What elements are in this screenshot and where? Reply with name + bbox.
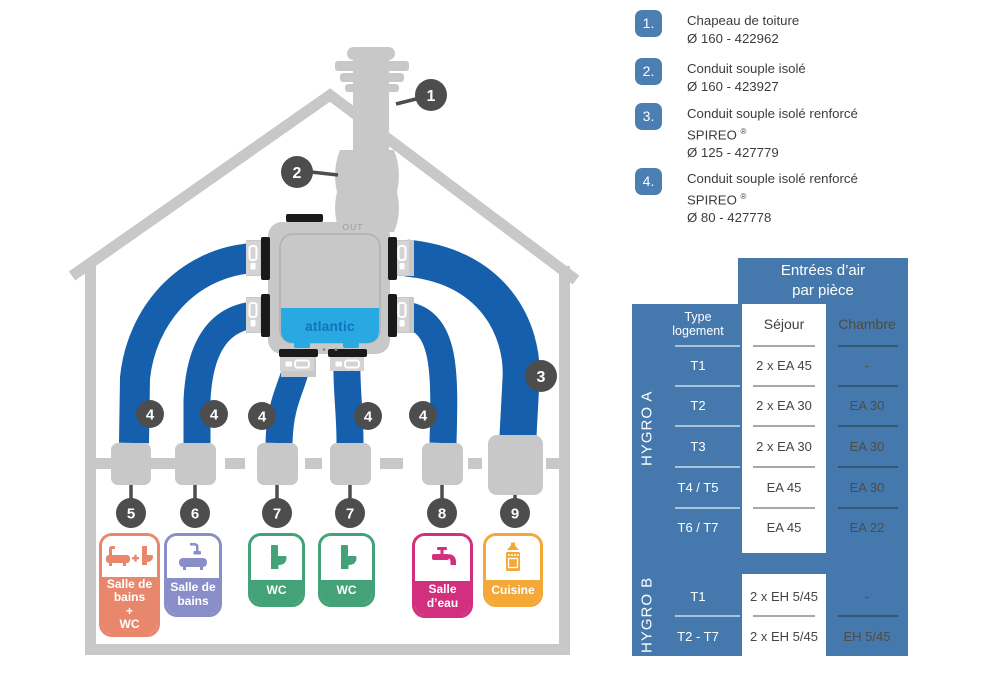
- row-separator: [838, 345, 898, 347]
- callout-3: 3: [537, 369, 546, 386]
- legend-item-3: Conduit souple isolé renforcé SPIREO ® Ø…: [687, 105, 987, 162]
- row-separator: [838, 507, 898, 509]
- faucet-icon: [415, 536, 470, 581]
- registered-mark: ®: [741, 127, 747, 136]
- legend-item-2: Conduit souple isolé Ø 160 - 423927: [687, 60, 987, 96]
- col-header-sejour: Séjour: [742, 315, 826, 333]
- room-label: Cuisine: [486, 580, 540, 604]
- registered-mark: ®: [741, 192, 747, 201]
- callout-9: 9: [511, 506, 519, 523]
- row-separator: [753, 385, 815, 387]
- room-label: Salle d’eau: [415, 581, 470, 615]
- row-separator: [838, 615, 898, 617]
- room-label: Salle de bains + WC: [102, 577, 157, 636]
- toilet-icon: [321, 536, 372, 580]
- legend-badge-4: 4.: [635, 168, 662, 195]
- table-cell-chambre: EH 5/45: [826, 628, 908, 646]
- table-cell-type: T2: [658, 397, 738, 415]
- room-label: Salle de bains: [167, 578, 219, 614]
- bathtub-toilet-icon: [102, 536, 157, 577]
- callout-2: 2: [293, 165, 302, 182]
- room-label-line: WC: [252, 584, 301, 597]
- table-cell-type: T3: [658, 438, 738, 456]
- table-cell-chambre: EA 30: [826, 438, 908, 456]
- unit-brand-label: atlantic: [305, 319, 355, 334]
- room-card-cuisine: Cuisine: [483, 533, 543, 607]
- room-card-wc-2: WC: [318, 533, 375, 607]
- table-cell-sejour: EA 45: [742, 479, 826, 497]
- hygro-b-label: HYGRO B: [634, 574, 660, 656]
- legend-product: SPIREO ®: [687, 123, 987, 144]
- callout-4c: 4: [258, 409, 267, 426]
- flexible-duct-icon: [335, 150, 399, 232]
- room-label-line: d’eau: [416, 597, 469, 610]
- bathtub-icon: [167, 536, 219, 578]
- legend-title: Conduit souple isolé renforcé: [687, 105, 987, 123]
- callout-1: 1: [427, 88, 436, 105]
- hygro-a-label: HYGRO A: [634, 304, 660, 553]
- col-header-chambre: Chambre: [826, 315, 908, 333]
- table-cell-sejour: EA 45: [742, 519, 826, 537]
- room-label: WC: [321, 580, 372, 604]
- table-cell-chambre: EA 30: [826, 397, 908, 415]
- table-cell-type: T1: [658, 357, 738, 375]
- callout-4d: 4: [364, 409, 373, 426]
- page: atlantic OUT: [0, 0, 1000, 692]
- table-header: Entrées d’air par pièce: [738, 258, 908, 304]
- row-separator: [753, 345, 815, 347]
- table-cell-sejour: 2 x EA 30: [742, 397, 826, 415]
- callout-7b: 7: [346, 506, 354, 523]
- table-cell-type: T4 / T5: [658, 479, 738, 497]
- legend-ref: Ø 160 - 422962: [687, 30, 987, 48]
- legend-badge-2: 2.: [635, 58, 662, 85]
- stove-icon: [486, 536, 540, 580]
- legend-badge-1: 1.: [635, 10, 662, 37]
- table-cell-chambre: -: [826, 357, 908, 375]
- legend-ref: Ø 125 - 427779: [687, 144, 987, 162]
- room-card-salle-d-eau: Salle d’eau: [412, 533, 473, 618]
- table-cell-sejour: 2 x EA 45: [742, 357, 826, 375]
- row-separator: [675, 466, 740, 468]
- room-label-line: Salle: [416, 583, 469, 596]
- callout-8: 8: [438, 506, 446, 523]
- room-label-line: Salle de: [103, 578, 156, 591]
- row-separator: [753, 425, 815, 427]
- row-separator: [675, 345, 740, 347]
- room-label-line: bains: [103, 591, 156, 604]
- legend-title: Chapeau de toiture: [687, 12, 987, 30]
- toilet-icon: [251, 536, 302, 580]
- row-separator: [753, 466, 815, 468]
- table-cell-sejour: 2 x EA 30: [742, 438, 826, 456]
- room-label-line: +: [103, 605, 156, 618]
- legend-title: Conduit souple isolé renforcé: [687, 170, 987, 188]
- row-separator: [675, 385, 740, 387]
- row-separator: [838, 385, 898, 387]
- room-label: WC: [251, 580, 302, 604]
- table-cell-type: T2 - T7: [658, 628, 738, 646]
- row-separator: [675, 615, 740, 617]
- row-separator: [838, 466, 898, 468]
- room-label-line: Salle de: [168, 581, 218, 594]
- callout-4b: 4: [210, 407, 219, 424]
- row-separator: [675, 507, 740, 509]
- room-card-salle-de-bains-wc: Salle de bains + WC: [99, 533, 160, 637]
- legend-ref: Ø 160 - 423927: [687, 78, 987, 96]
- room-card-salle-de-bains: Salle de bains: [164, 533, 222, 617]
- sejour-column-hygro-a: [742, 304, 826, 553]
- table-cell-type: T1: [658, 588, 738, 606]
- room-label-line: Cuisine: [487, 584, 539, 597]
- unit-out-label: OUT: [343, 222, 364, 232]
- col-header-type: Type logement: [658, 310, 738, 338]
- callout-6: 6: [191, 506, 199, 523]
- ceiling-vents: [96, 435, 559, 495]
- row-separator: [838, 425, 898, 427]
- callout-5: 5: [127, 506, 135, 523]
- row-separator: [753, 615, 815, 617]
- legend-badge-3: 3.: [635, 103, 662, 130]
- table-cell-type: T6 / T7: [658, 519, 738, 537]
- table-cell-sejour: 2 x EH 5/45: [742, 628, 826, 646]
- legend-item-1: Chapeau de toiture Ø 160 - 422962: [687, 12, 987, 48]
- table-cell-chambre: -: [826, 588, 908, 606]
- room-card-wc-1: WC: [248, 533, 305, 607]
- callout-4a: 4: [146, 407, 155, 424]
- table-cell-chambre: EA 22: [826, 519, 908, 537]
- row-separator: [675, 425, 740, 427]
- legend-ref: Ø 80 - 427778: [687, 209, 987, 227]
- table-header-line2: par pièce: [792, 281, 854, 301]
- room-label-line: bains: [168, 595, 218, 608]
- row-separator: [753, 507, 815, 509]
- table-header-line1: Entrées d’air: [781, 261, 865, 281]
- room-label-line: WC: [103, 618, 156, 631]
- table-cell-sejour: 2 x EH 5/45: [742, 588, 826, 606]
- ventilation-unit: atlantic OUT: [261, 214, 397, 357]
- table-cell-chambre: EA 30: [826, 479, 908, 497]
- legend-item-4: Conduit souple isolé renforcé SPIREO ® Ø…: [687, 170, 987, 227]
- legend-product: SPIREO ®: [687, 188, 987, 209]
- callout-7a: 7: [273, 506, 281, 523]
- legend-title: Conduit souple isolé: [687, 60, 987, 78]
- callout-4e: 4: [419, 408, 428, 425]
- room-label-line: WC: [322, 584, 371, 597]
